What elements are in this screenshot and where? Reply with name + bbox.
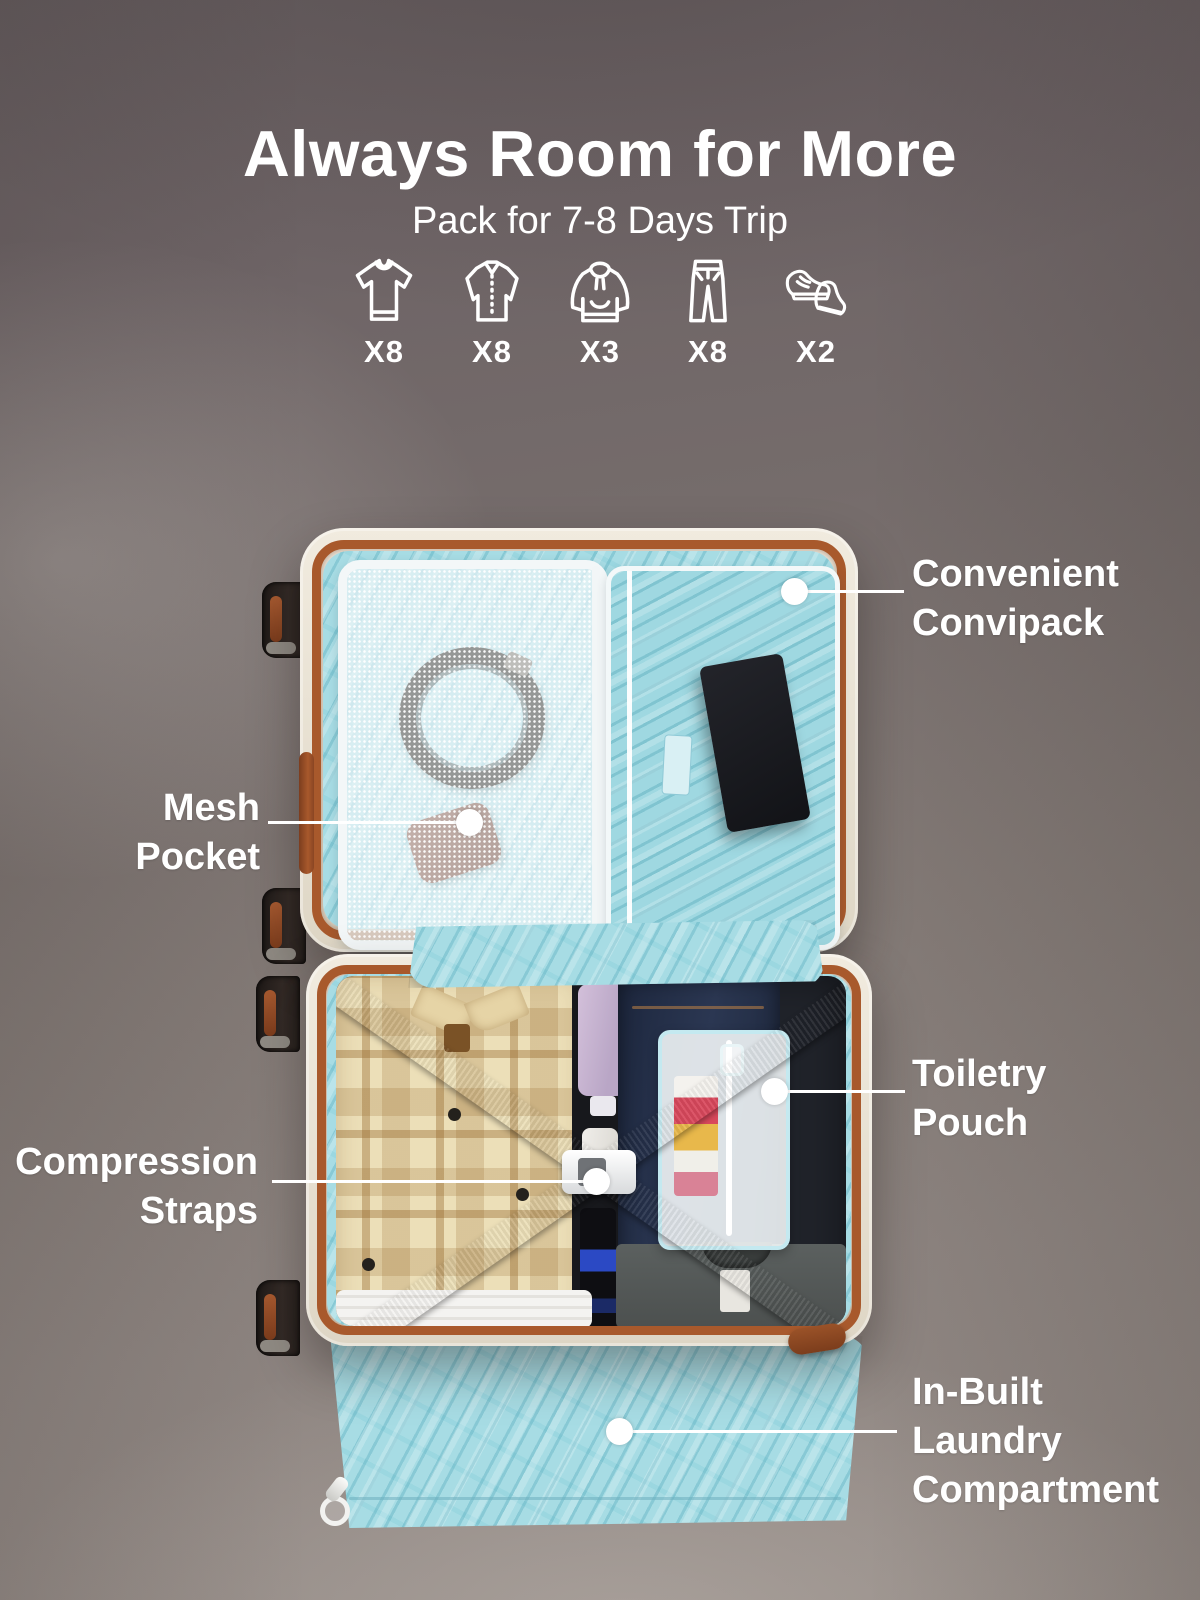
callout-dot-straps bbox=[583, 1168, 610, 1195]
page-subtitle: Pack for 7-8 Days Trip bbox=[0, 200, 1200, 243]
item-count: X3 bbox=[580, 334, 620, 370]
shirt-button bbox=[516, 1188, 529, 1201]
leader-line-mesh bbox=[268, 821, 470, 824]
mesh-net-overlay bbox=[347, 569, 599, 941]
page-title: Always Room for More bbox=[0, 116, 1200, 191]
convipack-panel bbox=[606, 566, 840, 950]
packing-item-pants: X8 bbox=[663, 252, 753, 370]
mesh-pocket bbox=[338, 560, 608, 950]
packed-contents bbox=[336, 976, 846, 1326]
leader-line-convipack bbox=[806, 590, 904, 593]
pants-icon bbox=[666, 252, 750, 330]
lid-zipper-divider bbox=[592, 566, 600, 938]
packing-item-shirt: X8 bbox=[447, 252, 537, 370]
passport-holder bbox=[699, 653, 811, 833]
callout-dot-convipack bbox=[781, 578, 808, 605]
callout-laundry-compartment: In-Built Laundry Compartment bbox=[912, 1368, 1159, 1515]
lid-side-handle bbox=[299, 752, 314, 874]
item-count: X2 bbox=[796, 334, 836, 370]
packing-item-tshirt: X8 bbox=[339, 252, 429, 370]
compartment-divider-flap bbox=[408, 920, 824, 988]
callout-compression-straps: Compression Straps bbox=[15, 1138, 258, 1236]
shirt-collar bbox=[464, 982, 531, 1035]
suitcase-wheel bbox=[256, 1280, 300, 1356]
packing-item-shoes: X2 bbox=[771, 252, 861, 370]
callout-dot-laundry bbox=[606, 1418, 633, 1445]
convipack-zipper bbox=[627, 571, 632, 945]
packing-item-hoodie: X3 bbox=[555, 252, 645, 370]
lavender-bottle-cap bbox=[590, 1096, 616, 1116]
callout-dot-mesh bbox=[456, 809, 483, 836]
convipack-brand-tag bbox=[661, 734, 692, 795]
luggage-infographic: Always Room for More Pack for 7-8 Days T… bbox=[0, 0, 1200, 1600]
item-count: X8 bbox=[364, 334, 404, 370]
hoodie-icon bbox=[558, 252, 642, 330]
shirt-button bbox=[448, 1108, 461, 1121]
shirt-button bbox=[362, 1258, 375, 1271]
callout-dot-toiletry bbox=[761, 1078, 788, 1105]
callout-toiletry-pouch: Toiletry Pouch bbox=[912, 1050, 1046, 1148]
callout-mesh-pocket: Mesh Pocket bbox=[135, 784, 260, 882]
shoes-icon bbox=[774, 252, 858, 330]
leader-line-toiletry bbox=[788, 1090, 905, 1093]
packing-capacity-list: X8 X8 X3 bbox=[0, 252, 1200, 370]
item-count: X8 bbox=[688, 334, 728, 370]
leader-line-straps bbox=[272, 1180, 597, 1183]
suitcase-wheel bbox=[256, 976, 300, 1052]
tshirt-icon bbox=[342, 252, 426, 330]
shirt-icon bbox=[450, 252, 534, 330]
callout-convipack: Convenient Convipack bbox=[912, 550, 1119, 648]
item-count: X8 bbox=[472, 334, 512, 370]
leader-line-laundry bbox=[633, 1430, 897, 1433]
